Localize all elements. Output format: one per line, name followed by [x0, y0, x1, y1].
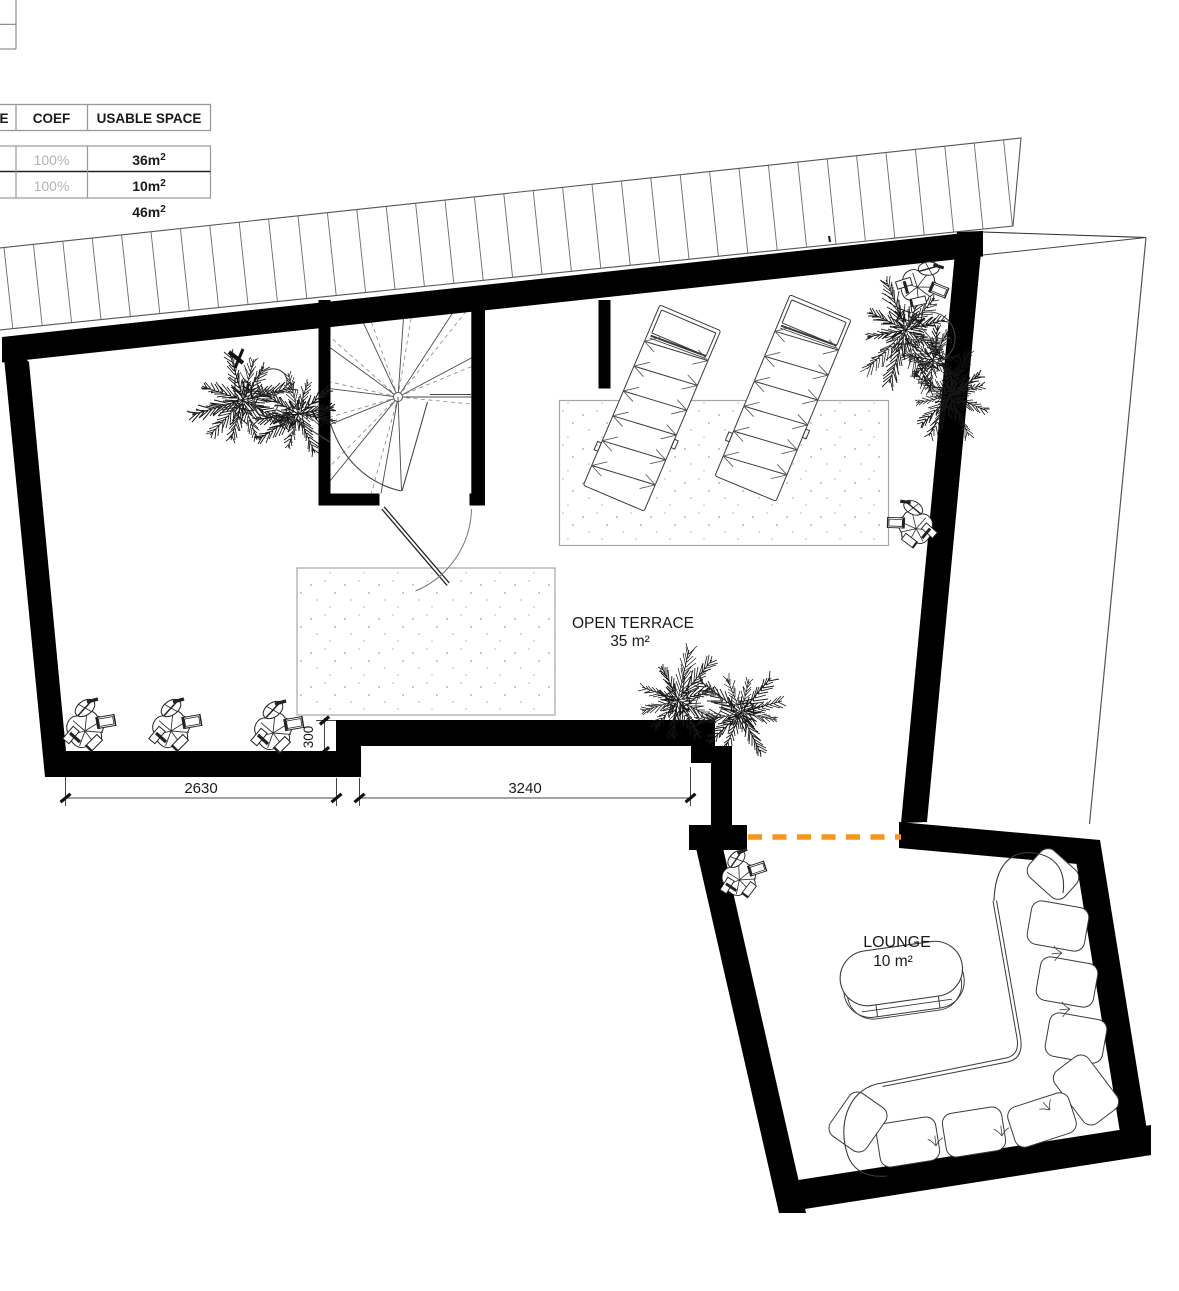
svg-text:100%: 100%: [34, 152, 70, 168]
svg-text:300: 300: [301, 726, 316, 749]
svg-text:USABLE SPACE: USABLE SPACE: [97, 111, 202, 126]
svg-text:10 m²: 10 m²: [873, 953, 913, 970]
svg-text:COEF: COEF: [33, 111, 71, 126]
svg-text:100%: 100%: [34, 178, 70, 194]
svg-text:3240: 3240: [508, 780, 541, 797]
svg-text:OPEN TERRACE: OPEN TERRACE: [572, 615, 694, 632]
svg-text:E: E: [0, 111, 9, 126]
svg-text:LOUNGE: LOUNGE: [863, 934, 931, 951]
svg-text:2630: 2630: [184, 780, 217, 797]
svg-text:35 m²: 35 m²: [610, 633, 650, 650]
